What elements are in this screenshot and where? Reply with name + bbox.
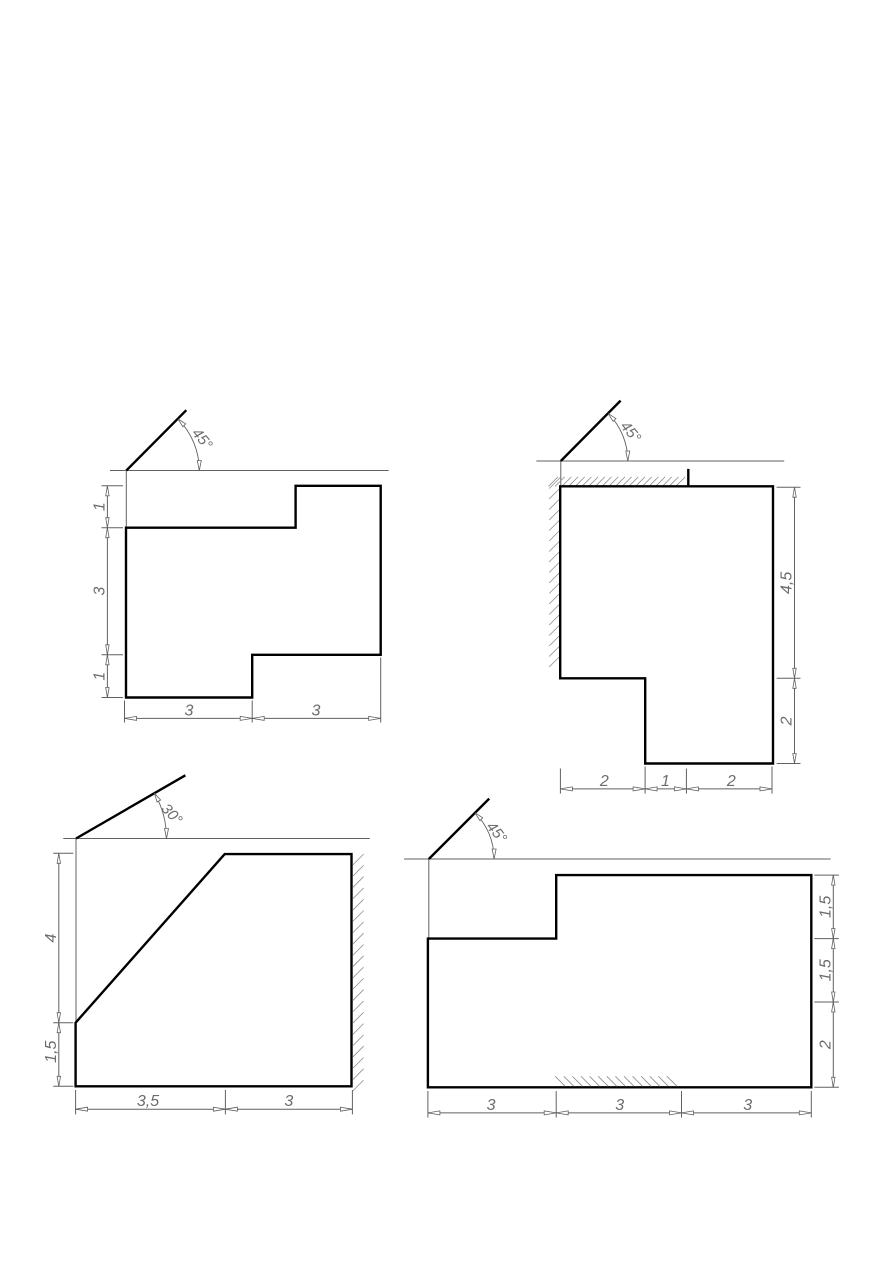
- svg-text:2: 2: [817, 1040, 834, 1050]
- svg-text:3,5: 3,5: [137, 1093, 159, 1110]
- svg-text:30°: 30°: [158, 800, 186, 828]
- svg-text:3: 3: [487, 1097, 496, 1114]
- svg-text:1,5: 1,5: [43, 1040, 60, 1062]
- svg-text:2: 2: [726, 773, 736, 790]
- svg-text:45°: 45°: [483, 818, 511, 846]
- svg-text:1: 1: [91, 672, 108, 681]
- svg-text:3: 3: [615, 1097, 624, 1114]
- svg-text:3: 3: [184, 702, 193, 719]
- svg-text:2: 2: [779, 716, 796, 726]
- svg-text:3: 3: [284, 1093, 293, 1110]
- svg-text:1,5: 1,5: [817, 896, 834, 918]
- svg-text:4: 4: [43, 933, 60, 942]
- svg-text:3: 3: [311, 702, 320, 719]
- svg-text:45°: 45°: [617, 418, 645, 446]
- svg-text:3: 3: [743, 1097, 752, 1114]
- svg-text:1: 1: [91, 502, 108, 511]
- svg-text:1,5: 1,5: [817, 959, 834, 981]
- svg-text:1: 1: [661, 773, 670, 790]
- svg-text:45°: 45°: [188, 425, 216, 453]
- svg-text:3: 3: [91, 587, 108, 596]
- svg-text:2: 2: [599, 773, 609, 790]
- svg-text:4,5: 4,5: [779, 572, 796, 594]
